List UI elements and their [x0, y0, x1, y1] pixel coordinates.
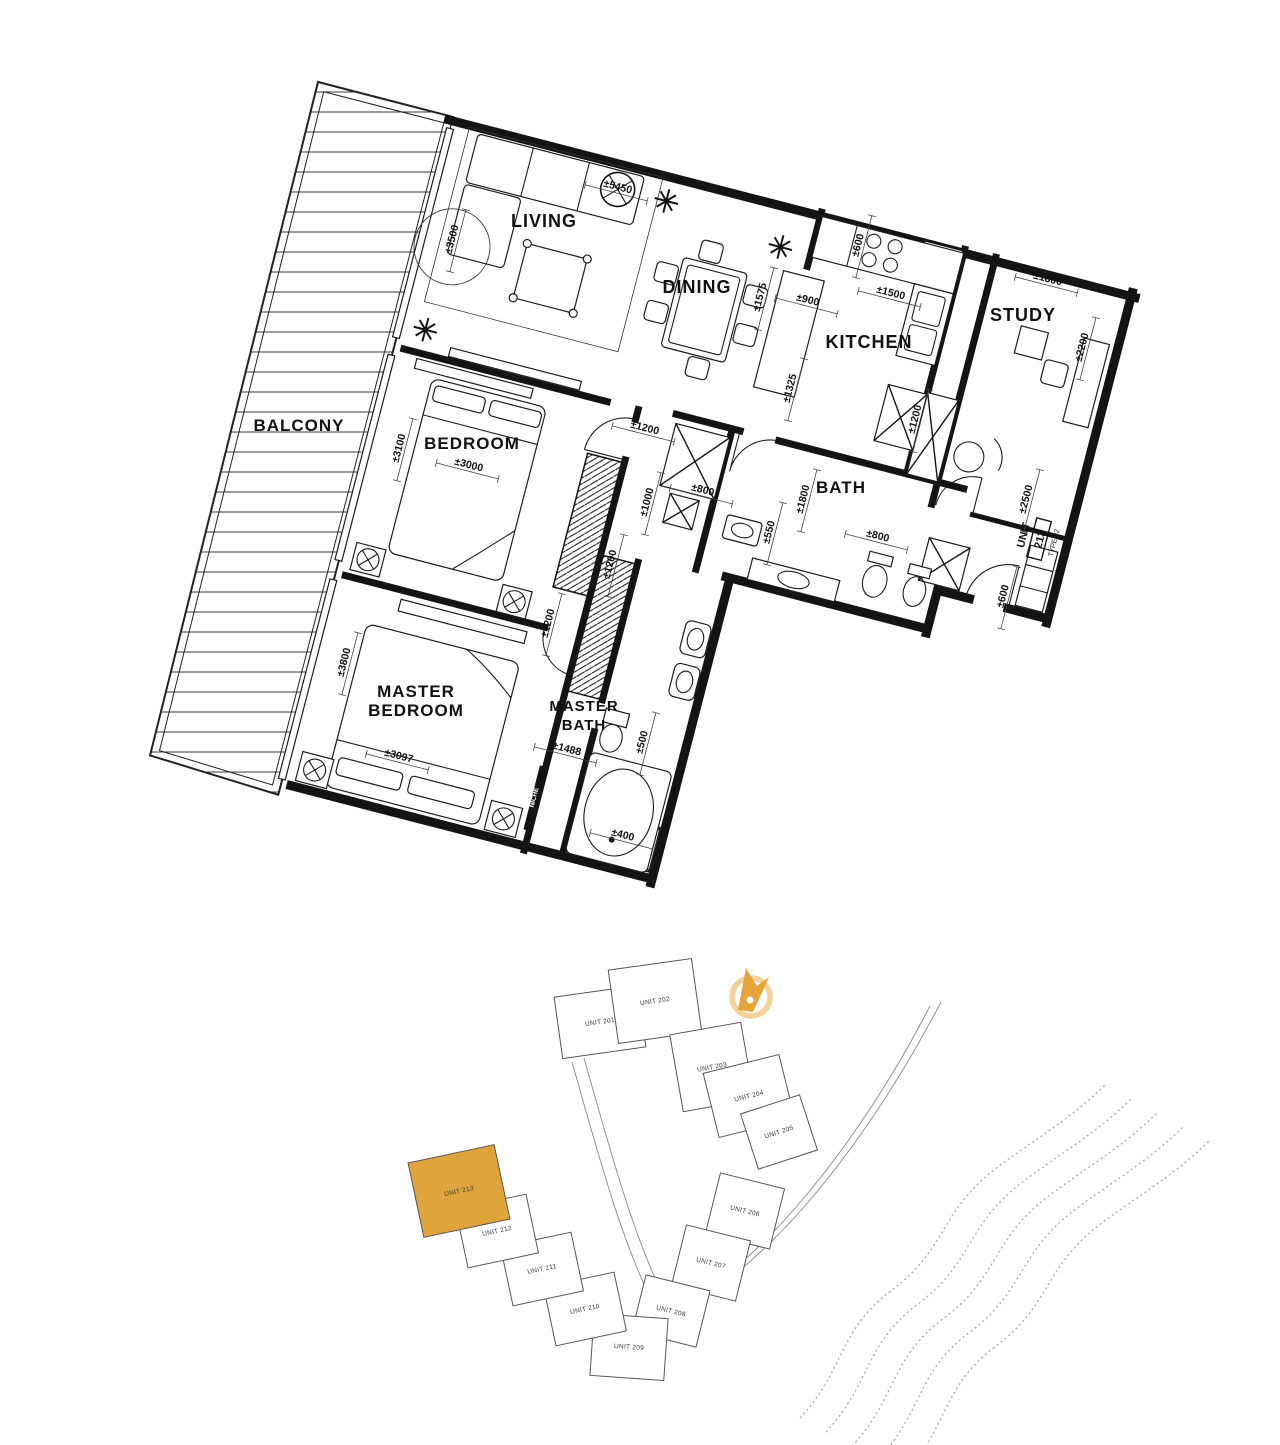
wave-line — [904, 1141, 1209, 1445]
room-label: LIVING — [511, 211, 577, 231]
wave-line — [878, 1127, 1183, 1445]
room-label: DINING — [663, 277, 732, 297]
compass-dot — [747, 997, 754, 1004]
wave-line — [826, 1099, 1131, 1432]
floorplan-page: UNIT 213 TYPE 02 LIVINGDININGKITCHENSTUD… — [0, 0, 1280, 1445]
room-label: BEDROOM — [424, 434, 520, 453]
room-label: STUDY — [990, 305, 1056, 325]
site-plan: UNIT 201UNIT 202UNIT 203UNIT 204UNIT 205… — [408, 959, 1209, 1445]
room-label: BALCONY — [253, 416, 344, 435]
room-label: KITCHEN — [826, 332, 913, 352]
water-waves — [800, 1085, 1209, 1445]
compass — [732, 968, 770, 1016]
site-unit: UNIT 202 — [608, 959, 701, 1044]
site-units: UNIT 201UNIT 202UNIT 203UNIT 204UNIT 205… — [408, 959, 817, 1381]
wave-line — [800, 1085, 1105, 1418]
room-label: BATH — [816, 478, 866, 497]
room-label: MASTERBEDROOM — [368, 682, 464, 720]
compass-arrow — [738, 968, 769, 1012]
floor-plan: UNIT 213 TYPE 02 LIVINGDININGKITCHENSTUD… — [143, 82, 1136, 971]
